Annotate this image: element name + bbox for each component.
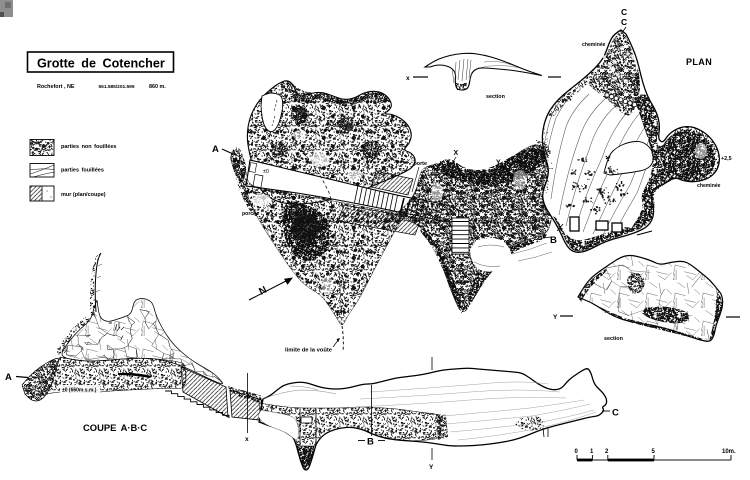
svg-text:A: A bbox=[5, 372, 12, 383]
svg-text:Y: Y bbox=[553, 314, 558, 321]
svg-text:860 m.: 860 m. bbox=[149, 84, 166, 90]
svg-text:section: section bbox=[604, 336, 623, 342]
svg-text:Y: Y bbox=[496, 160, 501, 167]
svg-text:+2,5: +2,5 bbox=[721, 156, 732, 162]
svg-text:±0: ±0 bbox=[263, 169, 269, 175]
svg-text:Y: Y bbox=[429, 464, 434, 471]
svg-text:x: x bbox=[406, 75, 410, 82]
svg-text:PLAN: PLAN bbox=[686, 57, 712, 67]
svg-text:551.585/201.599: 551.585/201.599 bbox=[99, 84, 135, 90]
svg-text:B: B bbox=[367, 437, 374, 448]
svg-text:parties fouillées: parties fouillées bbox=[61, 167, 104, 173]
svg-text:cheminée: cheminée bbox=[697, 183, 721, 189]
svg-text:porche: porche bbox=[242, 211, 259, 217]
svg-text:x: x bbox=[245, 436, 249, 443]
svg-text:10m.: 10m. bbox=[722, 449, 736, 455]
svg-text:X: X bbox=[454, 150, 459, 157]
svg-text:mur (plan/coupe): mur (plan/coupe) bbox=[61, 192, 106, 198]
svg-text:B: B bbox=[550, 235, 557, 246]
svg-text:porte: porte bbox=[414, 161, 427, 167]
svg-text:cheminée: cheminée bbox=[582, 42, 606, 48]
svg-text:COUPE A·B·C: COUPE A·B·C bbox=[83, 422, 147, 433]
svg-text:C: C bbox=[621, 17, 627, 27]
svg-text:parties non fouillées: parties non fouillées bbox=[61, 144, 116, 150]
svg-text:C: C bbox=[612, 408, 619, 419]
svg-text:section: section bbox=[486, 94, 505, 100]
svg-text:Rochefort , NE: Rochefort , NE bbox=[37, 84, 75, 90]
svg-text:±0 (660m.s.m.): ±0 (660m.s.m.) bbox=[62, 388, 97, 394]
svg-text:Grotte de Cotencher: Grotte de Cotencher bbox=[37, 57, 165, 71]
svg-text:C: C bbox=[621, 7, 627, 17]
svg-text:limite de la voûte: limite de la voûte bbox=[285, 348, 333, 354]
svg-text:A: A bbox=[212, 144, 219, 155]
